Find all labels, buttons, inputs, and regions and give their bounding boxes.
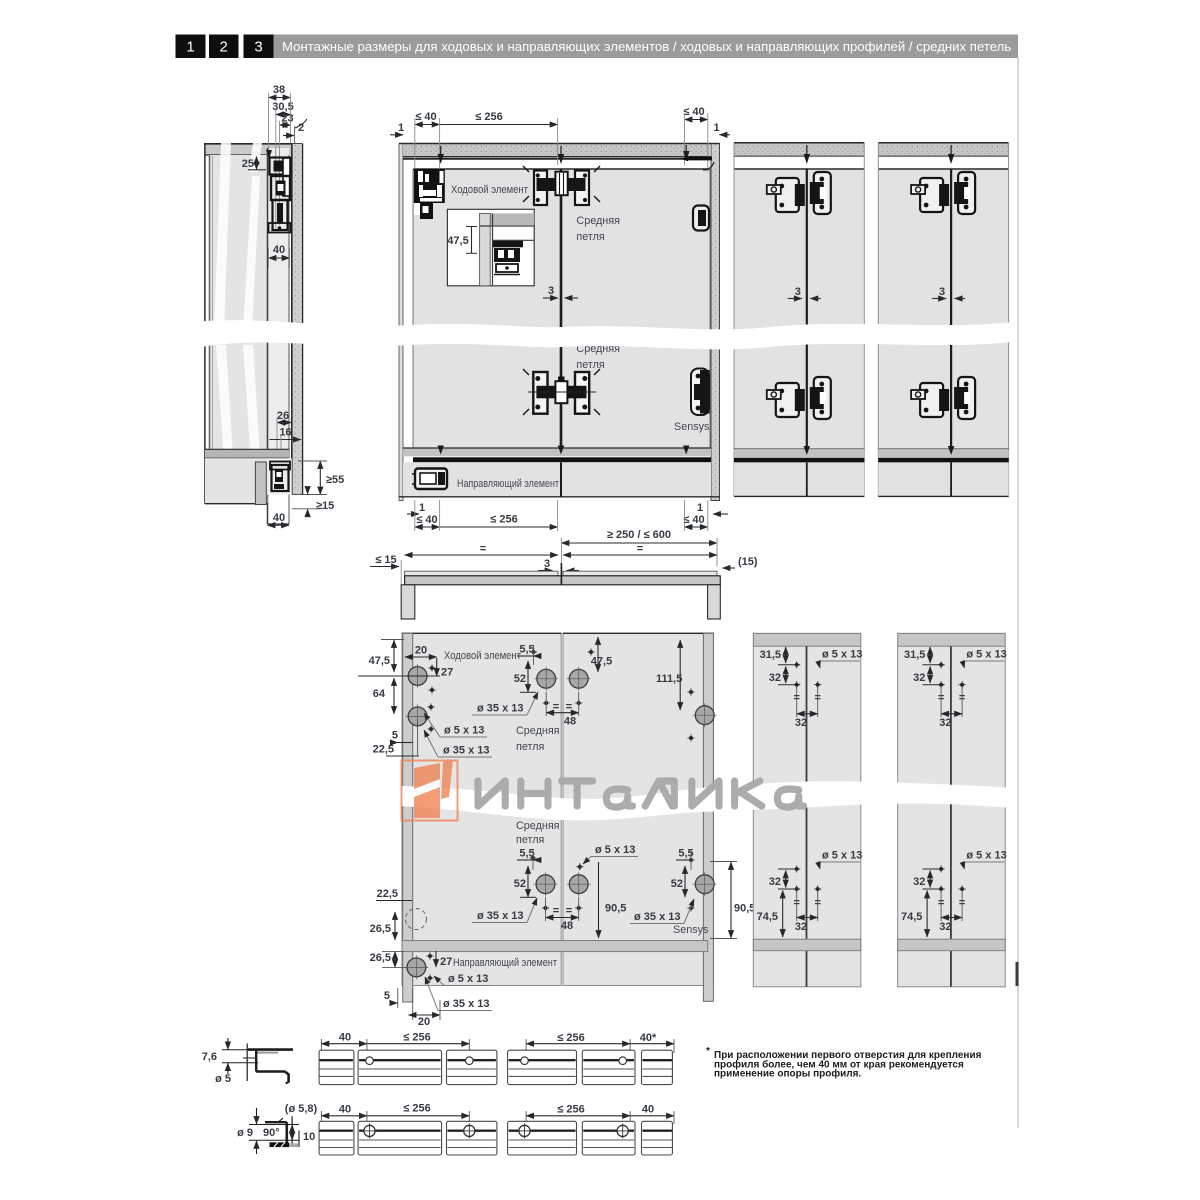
svg-text:1: 1 (713, 122, 719, 134)
svg-text:Средняя: Средняя (516, 725, 560, 737)
svg-text:Средняя: Средняя (516, 820, 560, 832)
svg-text:27: 27 (441, 667, 453, 679)
svg-text:≥ 250 / ≤ 600: ≥ 250 / ≤ 600 (607, 529, 671, 541)
svg-text:ø 35 x 13: ø 35 x 13 (634, 911, 680, 923)
svg-text:7,6: 7,6 (202, 1051, 217, 1063)
svg-text:≤ 256: ≤ 256 (490, 514, 517, 526)
svg-text:40: 40 (273, 244, 285, 256)
svg-text:=: = (566, 701, 572, 713)
svg-text:111,5: 111,5 (656, 673, 682, 685)
svg-text:ø 5 x 13: ø 5 x 13 (822, 649, 862, 661)
svg-text:40*: 40* (640, 1032, 657, 1044)
svg-text:Направляющий элемент: Направляющий элемент (457, 478, 559, 490)
svg-text:=: = (637, 543, 643, 555)
svg-text:27: 27 (440, 956, 452, 968)
svg-text:5,5: 5,5 (519, 848, 534, 860)
svg-text:32: 32 (769, 876, 781, 888)
svg-text:52: 52 (514, 878, 526, 890)
svg-text:*: * (706, 1046, 710, 1057)
svg-text:=: = (566, 905, 572, 917)
svg-text:26: 26 (277, 410, 289, 422)
svg-text:3: 3 (254, 39, 262, 56)
svg-text:40: 40 (642, 1104, 654, 1116)
svg-text:5,5: 5,5 (519, 644, 534, 656)
svg-text:25: 25 (242, 158, 254, 170)
svg-text:47,5: 47,5 (447, 235, 468, 247)
svg-text:32: 32 (769, 672, 781, 684)
svg-text:1: 1 (398, 122, 404, 134)
svg-text:5: 5 (384, 990, 390, 1002)
svg-text:ø 5 x 13: ø 5 x 13 (448, 973, 488, 985)
svg-text:10: 10 (303, 1131, 315, 1143)
svg-text:22,5: 22,5 (373, 744, 394, 756)
svg-text:Ходовой элемент: Ходовой элемент (444, 650, 521, 662)
svg-text:ø 35 x 13: ø 35 x 13 (477, 703, 523, 715)
svg-text:47,5: 47,5 (369, 655, 390, 667)
svg-text:31,5: 31,5 (760, 649, 781, 661)
svg-text:20: 20 (418, 1016, 430, 1028)
svg-text:Ходовой элемент: Ходовой элемент (451, 184, 528, 196)
svg-text:≤ 40: ≤ 40 (683, 514, 704, 526)
svg-text:90,5: 90,5 (734, 903, 755, 915)
svg-text:47,5: 47,5 (591, 656, 612, 668)
svg-text:≤ 40: ≤ 40 (415, 111, 436, 123)
svg-text:=: = (553, 701, 559, 713)
svg-text:ø 35 x 13: ø 35 x 13 (443, 745, 489, 757)
svg-text:=: = (553, 905, 559, 917)
svg-text:ø 5 x 13: ø 5 x 13 (444, 725, 484, 737)
svg-text:Средняя: Средняя (576, 215, 620, 227)
svg-text:=: = (480, 543, 486, 555)
svg-text:(ø 5,8): (ø 5,8) (285, 1103, 318, 1115)
svg-text:применение опоры профиля.: применение опоры профиля. (714, 1068, 861, 1080)
svg-text:Монтажные размеры для ходовых: Монтажные размеры для ходовых и направля… (282, 39, 1011, 54)
svg-text:петля: петля (516, 834, 545, 846)
svg-text:48: 48 (561, 920, 573, 932)
svg-text:≤ 40: ≤ 40 (416, 514, 437, 526)
svg-text:ø 5 x 13: ø 5 x 13 (822, 850, 862, 862)
svg-text:3: 3 (795, 286, 801, 298)
svg-text:52: 52 (514, 673, 526, 685)
svg-text:3: 3 (548, 285, 554, 297)
svg-text:32: 32 (795, 717, 807, 729)
svg-text:ø 5 x 13: ø 5 x 13 (595, 844, 635, 856)
svg-text:20: 20 (415, 645, 427, 657)
svg-text:≤ 256: ≤ 256 (557, 1104, 584, 1116)
svg-text:40: 40 (339, 1104, 351, 1116)
svg-text:≤ 40: ≤ 40 (683, 106, 704, 118)
svg-text:23: 23 (281, 113, 293, 125)
svg-text:петля: петля (516, 741, 545, 753)
svg-text:26,5: 26,5 (370, 923, 391, 935)
svg-text:петля: петля (576, 231, 605, 243)
svg-text:40: 40 (339, 1032, 351, 1044)
svg-text:Sensys: Sensys (673, 924, 709, 936)
svg-text:38: 38 (273, 84, 285, 96)
svg-text:32: 32 (795, 921, 807, 933)
svg-text:ø 5: ø 5 (215, 1073, 231, 1085)
svg-text:3: 3 (544, 558, 550, 570)
svg-text:90°: 90° (263, 1127, 280, 1139)
svg-text:≥15: ≥15 (316, 500, 334, 512)
svg-text:26,5: 26,5 (370, 952, 391, 964)
svg-text:Sensys: Sensys (674, 421, 710, 433)
svg-text:90,5: 90,5 (605, 903, 626, 915)
svg-text:1: 1 (419, 502, 425, 514)
svg-text:Направляющий элемент: Направляющий элемент (453, 957, 557, 969)
svg-text:(15): (15) (738, 556, 758, 568)
svg-text:1: 1 (186, 39, 194, 56)
svg-text:2: 2 (220, 39, 228, 56)
svg-text:40: 40 (273, 512, 285, 524)
svg-text:петля: петля (576, 359, 605, 371)
svg-text:≤ 256: ≤ 256 (403, 1103, 430, 1115)
svg-text:48: 48 (564, 716, 576, 728)
svg-text:74,5: 74,5 (757, 911, 778, 923)
svg-text:≤ 256: ≤ 256 (557, 1032, 584, 1044)
svg-text:52: 52 (671, 878, 683, 890)
svg-text:1: 1 (697, 502, 703, 514)
svg-text:≥55: ≥55 (326, 474, 344, 486)
svg-text:5: 5 (392, 730, 398, 742)
svg-text:≤ 256: ≤ 256 (475, 111, 502, 123)
svg-text:≤ 15: ≤ 15 (375, 554, 396, 566)
svg-text:≤ 256: ≤ 256 (403, 1032, 430, 1044)
svg-text:ø 9: ø 9 (237, 1127, 253, 1139)
svg-text:22,5: 22,5 (377, 888, 398, 900)
svg-text:ø 35 x 13: ø 35 x 13 (443, 998, 489, 1010)
svg-text:ø 35 x 13: ø 35 x 13 (477, 910, 523, 922)
svg-text:64: 64 (373, 688, 386, 700)
